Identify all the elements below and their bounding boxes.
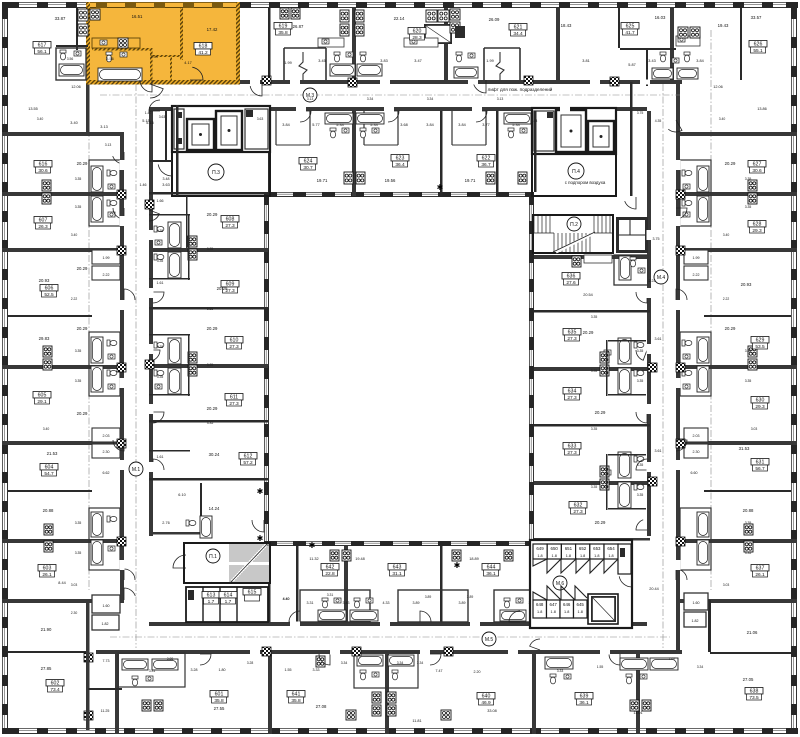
svg-text:16.03: 16.03 [655,15,666,20]
svg-text:11.25: 11.25 [101,709,110,713]
svg-text:3.03: 3.03 [71,583,78,587]
svg-text:20.29: 20.29 [595,410,606,415]
svg-text:1.7: 1.7 [208,599,215,605]
svg-text:31.53: 31.53 [739,446,750,451]
svg-text:2.22: 2.22 [71,297,78,301]
svg-text:30.24: 30.24 [209,452,220,457]
svg-text:3.13: 3.13 [307,97,314,101]
svg-text:41.2: 41.2 [198,50,208,56]
svg-text:3.56: 3.56 [67,57,74,61]
svg-text:1.46: 1.46 [140,183,147,187]
svg-text:35.8: 35.8 [214,698,224,704]
svg-text:3.84: 3.84 [282,123,289,127]
svg-text:641: 641 [292,692,301,698]
svg-text:634: 634 [568,389,577,395]
svg-text:3.88: 3.88 [167,657,174,661]
svg-text:21.90: 21.90 [41,627,52,632]
svg-text:601: 601 [215,692,224,698]
svg-text:33.08: 33.08 [487,709,497,713]
svg-text:с подпором воздуха: с подпором воздуха [565,180,606,185]
svg-text:3.28: 3.28 [247,661,254,665]
svg-text:3.89: 3.89 [425,595,432,599]
svg-text:19.43: 19.43 [718,23,729,28]
svg-text:2.22: 2.22 [649,279,656,283]
svg-text:11.32: 11.32 [309,557,318,561]
svg-text:27.3: 27.3 [225,223,235,229]
svg-text:29.3: 29.3 [752,228,762,234]
svg-text:29.1: 29.1 [37,399,47,405]
svg-text:1.40: 1.40 [145,111,152,115]
svg-text:618: 618 [199,44,208,50]
svg-text:53.5: 53.5 [755,344,765,350]
svg-text:56.7: 56.7 [755,466,765,472]
svg-text:1.82: 1.82 [102,622,109,626]
svg-text:3.48: 3.48 [163,177,170,181]
svg-text:614: 614 [224,593,233,599]
svg-text:1.55: 1.55 [285,668,292,672]
svg-text:4.35: 4.35 [655,119,662,123]
svg-text:627: 627 [753,162,762,168]
svg-text:5.15: 5.15 [142,119,149,123]
svg-text:5.87: 5.87 [628,63,635,67]
svg-text:610: 610 [230,338,239,344]
svg-text:648: 648 [536,602,544,607]
svg-text:633: 633 [568,444,577,450]
svg-text:20.29: 20.29 [77,326,88,331]
svg-text:3.13: 3.13 [105,143,112,147]
svg-text:3.33: 3.33 [313,668,320,672]
svg-text:36.4: 36.4 [395,162,405,168]
svg-text:3.35: 3.35 [745,177,752,181]
svg-text:607: 607 [39,218,48,224]
svg-text:3.35: 3.35 [157,229,164,233]
svg-text:1.8: 1.8 [552,554,557,558]
svg-text:3.31: 3.31 [307,601,314,605]
svg-text:4.17: 4.17 [184,61,191,65]
svg-text:21.53: 21.53 [47,451,58,456]
svg-text:1.7: 1.7 [225,599,232,605]
svg-text:26.09: 26.09 [489,17,500,22]
svg-text:27.85: 27.85 [41,666,52,671]
svg-text:3.40: 3.40 [37,117,44,121]
svg-text:1.99: 1.99 [693,256,700,260]
svg-text:616: 616 [39,162,48,168]
svg-text:3.47: 3.47 [414,59,421,63]
svg-text:34.4: 34.4 [513,31,523,37]
svg-text:19.48: 19.48 [355,557,365,561]
svg-text:625: 625 [626,24,635,30]
svg-text:30.6: 30.6 [752,168,762,174]
svg-text:2.76: 2.76 [162,521,169,525]
svg-text:73.4: 73.4 [50,687,60,693]
svg-text:3.56: 3.56 [106,57,113,61]
svg-text:621: 621 [514,25,523,31]
svg-text:26.1: 26.1 [42,572,52,578]
svg-text:52.5: 52.5 [44,292,54,298]
svg-text:3.35: 3.35 [637,379,644,383]
svg-text:лифт для пож. подразделений: лифт для пож. подразделений [488,86,553,92]
svg-text:31.1: 31.1 [392,571,402,577]
svg-text:3.84: 3.84 [458,123,465,127]
svg-text:20.93: 20.93 [741,282,752,287]
svg-text:12.06: 12.06 [713,85,723,89]
svg-text:20.93: 20.93 [39,278,50,283]
svg-text:22.14: 22.14 [394,16,405,21]
svg-text:606: 606 [45,286,54,292]
svg-text:1.61: 1.61 [157,455,164,459]
svg-text:3.34: 3.34 [427,97,434,101]
svg-text:3.84: 3.84 [696,59,703,63]
svg-text:41.7: 41.7 [625,30,635,36]
svg-text:20.29: 20.29 [217,286,228,291]
svg-text:18.43: 18.43 [561,23,572,28]
svg-text:3.35: 3.35 [157,375,164,379]
svg-text:3.75: 3.75 [653,237,660,241]
svg-text:3.35: 3.35 [745,521,752,525]
svg-text:654: 654 [607,546,615,551]
svg-text:3.35: 3.35 [745,551,752,555]
svg-text:644: 644 [487,565,496,571]
svg-text:11.81: 11.81 [412,719,421,723]
svg-text:4.33: 4.33 [383,601,390,605]
svg-text:36.1: 36.1 [579,700,589,706]
svg-text:3.35: 3.35 [207,247,214,251]
svg-text:3.63: 3.63 [267,543,274,547]
svg-text:1.8: 1.8 [578,610,583,614]
svg-text:3.34: 3.34 [697,665,704,669]
svg-text:21.06: 21.06 [747,630,758,635]
svg-text:637: 637 [756,566,765,572]
svg-text:647: 647 [550,602,558,607]
svg-text:29.83: 29.83 [39,336,50,341]
svg-text:20.88: 20.88 [43,508,54,513]
svg-text:56.1: 56.1 [37,49,47,55]
svg-text:1.8: 1.8 [537,610,542,614]
svg-text:20.29: 20.29 [595,520,606,525]
svg-text:27.3: 27.3 [567,450,577,456]
svg-text:46.9: 46.9 [481,700,491,706]
svg-text:73.5: 73.5 [749,695,759,701]
svg-text:649: 649 [536,546,544,551]
svg-text:20.29: 20.29 [77,411,88,416]
svg-text:624: 624 [304,159,313,165]
svg-text:3.35: 3.35 [637,463,644,467]
svg-text:3.35: 3.35 [745,379,752,383]
svg-text:20.29: 20.29 [77,161,88,166]
svg-text:27.3: 27.3 [567,336,577,342]
svg-text:3.35: 3.35 [157,345,164,349]
svg-text:653: 653 [593,546,601,551]
svg-text:19.56: 19.56 [385,178,396,183]
svg-text:1.66: 1.66 [157,199,164,203]
svg-text:3.83: 3.83 [380,59,387,63]
svg-text:8.44: 8.44 [58,581,65,585]
svg-text:3.63: 3.63 [159,115,166,119]
svg-text:2.20: 2.20 [474,670,481,674]
svg-text:1.8: 1.8 [537,554,542,558]
svg-text:20.29: 20.29 [77,266,88,271]
svg-text:2.22: 2.22 [103,273,110,277]
svg-text:3.35: 3.35 [591,315,598,319]
svg-text:611: 611 [230,395,238,401]
svg-text:3.77: 3.77 [482,123,489,127]
svg-text:3.40: 3.40 [43,427,50,431]
svg-text:605: 605 [38,393,47,399]
svg-text:11.01: 11.01 [633,711,642,715]
svg-text:3.43: 3.43 [343,601,350,605]
svg-text:36.1: 36.1 [486,571,496,577]
svg-text:632: 632 [574,503,583,509]
svg-text:604: 604 [45,465,54,471]
svg-text:635: 635 [568,330,577,336]
svg-text:638: 638 [750,689,759,695]
svg-text:16.51: 16.51 [132,14,143,19]
svg-text:7.47: 7.47 [436,669,443,673]
svg-text:612: 612 [244,454,253,460]
svg-text:3.40: 3.40 [719,117,726,121]
svg-text:М.1: М.1 [132,467,141,473]
svg-text:26.87: 26.87 [293,24,304,29]
svg-text:3.34: 3.34 [150,55,157,59]
svg-text:2.30: 2.30 [71,611,78,615]
svg-text:3.03: 3.03 [723,583,730,587]
svg-text:19.71: 19.71 [465,178,476,183]
svg-text:20.29: 20.29 [725,161,736,166]
svg-text:20.44: 20.44 [649,587,659,591]
svg-text:7.73: 7.73 [103,659,110,663]
svg-text:27.55: 27.55 [214,706,225,711]
svg-text:631: 631 [756,460,765,466]
svg-text:35.8: 35.8 [278,30,288,36]
svg-text:615: 615 [248,590,257,596]
svg-text:36.7: 36.7 [481,162,491,168]
svg-text:3.13: 3.13 [497,97,504,101]
svg-text:54.7: 54.7 [44,471,54,477]
svg-text:✱: ✱ [309,541,316,550]
svg-text:2.22: 2.22 [693,273,700,277]
svg-text:3.35: 3.35 [637,493,644,497]
svg-text:М.4: М.4 [657,275,666,281]
svg-text:57.2: 57.2 [243,460,253,466]
svg-text:1.8: 1.8 [594,554,599,558]
svg-text:13.55: 13.55 [28,107,38,111]
svg-text:3.43: 3.43 [648,59,655,63]
svg-text:27.3: 27.3 [573,509,583,515]
svg-text:3.35: 3.35 [591,427,598,431]
svg-text:27.08: 27.08 [316,704,327,709]
svg-text:3.81: 3.81 [582,59,589,63]
svg-text:17.42: 17.42 [207,27,218,32]
svg-text:3.89: 3.89 [459,601,466,605]
svg-text:1.8: 1.8 [580,554,585,558]
svg-text:1.60: 1.60 [103,604,110,608]
svg-text:30.6: 30.6 [38,168,48,174]
svg-text:628: 628 [753,222,762,228]
svg-text:2.03: 2.03 [103,434,110,438]
svg-text:3.35: 3.35 [75,349,82,353]
svg-text:1.60: 1.60 [693,601,700,605]
svg-text:642: 642 [326,565,335,571]
svg-text:3.35: 3.35 [745,205,752,209]
svg-text:20.29: 20.29 [207,326,218,331]
svg-text:3.35: 3.35 [207,421,214,425]
svg-text:3.89: 3.89 [467,595,474,599]
svg-text:3.31: 3.31 [327,593,334,597]
svg-text:13.86: 13.86 [757,107,767,111]
svg-text:6.60: 6.60 [691,471,698,475]
svg-text:3.35: 3.35 [157,259,164,263]
svg-text:М.6: М.6 [556,581,565,587]
svg-text:3.84: 3.84 [426,123,433,127]
svg-text:3.31: 3.31 [149,669,156,673]
svg-text:2.22: 2.22 [723,297,730,301]
svg-text:652: 652 [579,546,587,551]
svg-text:5.77: 5.77 [312,123,319,127]
svg-text:22.8: 22.8 [325,571,335,577]
svg-text:35.8: 35.8 [291,698,301,704]
svg-text:26.3: 26.3 [38,224,48,230]
svg-text:1.8: 1.8 [551,610,556,614]
svg-text:✱: ✱ [257,487,264,496]
svg-text:20.88: 20.88 [743,508,754,513]
svg-text:5.34: 5.34 [370,123,377,127]
svg-text:3.40: 3.40 [71,233,78,237]
svg-text:3.34: 3.34 [367,97,374,101]
svg-text:626: 626 [754,42,763,48]
svg-text:3.35: 3.35 [75,379,82,383]
svg-text:3.35: 3.35 [75,521,82,525]
svg-text:2.03: 2.03 [693,434,700,438]
svg-text:617: 617 [38,43,47,49]
svg-text:622: 622 [482,156,491,162]
svg-text:3.40: 3.40 [70,121,77,125]
svg-text:27.3: 27.3 [229,344,239,350]
svg-text:27.3: 27.3 [567,395,577,401]
svg-text:✱: ✱ [454,561,461,570]
svg-text:3.34: 3.34 [417,661,424,665]
svg-text:М.5: М.5 [485,637,494,643]
svg-text:27.6: 27.6 [566,280,576,286]
svg-text:3.63: 3.63 [162,183,169,187]
svg-text:3.13: 3.13 [100,125,107,129]
svg-text:3.75: 3.75 [637,111,644,115]
svg-text:14.24: 14.24 [209,506,220,511]
svg-text:3.35: 3.35 [591,369,598,373]
svg-text:646: 646 [563,602,571,607]
svg-text:1.8: 1.8 [608,554,613,558]
svg-text:20.29: 20.29 [725,326,736,331]
svg-text:✱: ✱ [257,534,264,543]
svg-text:3.35: 3.35 [207,363,214,367]
svg-text:3.40: 3.40 [723,233,730,237]
svg-text:20.29: 20.29 [207,212,218,217]
svg-text:1.80: 1.80 [219,668,226,672]
svg-text:2.30: 2.30 [693,450,700,454]
svg-text:6.62: 6.62 [103,471,110,475]
svg-text:3.35: 3.35 [75,551,82,555]
svg-text:12.06: 12.06 [71,85,81,89]
svg-text:20.29: 20.29 [207,406,218,411]
svg-text:3.35: 3.35 [591,485,598,489]
svg-text:3.61: 3.61 [655,449,662,453]
svg-text:1.99: 1.99 [486,59,493,63]
svg-text:3.63: 3.63 [257,117,264,121]
svg-text:3.34: 3.34 [341,661,348,665]
svg-text:3.35: 3.35 [207,307,214,311]
svg-text:3.03: 3.03 [751,427,758,431]
svg-text:1.61: 1.61 [157,281,164,285]
svg-text:6.10: 6.10 [178,493,185,497]
svg-text:3.34: 3.34 [397,661,404,665]
svg-text:27.3: 27.3 [229,401,239,407]
svg-text:27.05: 27.05 [743,677,754,682]
svg-text:645: 645 [577,602,585,607]
svg-text:26.1: 26.1 [755,572,765,578]
svg-text:640: 640 [482,694,491,700]
svg-text:629: 629 [756,338,765,344]
svg-text:33.87: 33.87 [55,16,66,21]
svg-text:643: 643 [393,565,402,571]
svg-text:623: 623 [396,156,405,162]
svg-text:650: 650 [551,546,559,551]
svg-text:1.55: 1.55 [597,665,604,669]
svg-text:3.33: 3.33 [557,669,564,673]
svg-text:5.34: 5.34 [336,123,343,127]
svg-text:602: 602 [51,681,60,687]
svg-text:30.7: 30.7 [303,165,313,171]
svg-text:П.4: П.4 [572,169,580,175]
svg-text:1.99: 1.99 [103,256,110,260]
svg-text:639: 639 [580,694,589,700]
svg-text:3.35: 3.35 [75,177,82,181]
svg-text:33.57: 33.57 [751,15,762,20]
svg-text:3.45: 3.45 [318,59,325,63]
svg-text:П.2: П.2 [570,222,578,228]
svg-text:3.63: 3.63 [497,543,504,547]
svg-text:20.54: 20.54 [583,293,593,297]
svg-text:1.8: 1.8 [564,610,569,614]
svg-text:3.89: 3.89 [413,601,420,605]
svg-text:28.3: 28.3 [412,35,422,41]
svg-text:20.29: 20.29 [583,330,594,335]
svg-text:636: 636 [567,274,576,280]
svg-text:3.63: 3.63 [531,119,538,123]
svg-text:29.3: 29.3 [755,404,765,410]
svg-text:3.28: 3.28 [191,668,198,672]
svg-text:1.82: 1.82 [692,619,699,623]
svg-text:2.30: 2.30 [103,450,110,454]
svg-text:603: 603 [43,566,52,572]
svg-text:608: 608 [226,217,235,223]
svg-text:4.40: 4.40 [283,597,290,601]
svg-text:П.1: П.1 [209,554,217,560]
svg-text:5.34: 5.34 [512,123,519,127]
svg-text:18.89: 18.89 [469,557,479,561]
svg-text:651: 651 [565,546,573,551]
svg-text:620: 620 [413,29,422,35]
svg-text:55.1: 55.1 [753,48,763,54]
svg-text:613: 613 [207,593,216,599]
svg-text:1.99: 1.99 [284,61,291,65]
svg-text:3.61: 3.61 [655,337,662,341]
svg-text:3.35: 3.35 [75,205,82,209]
svg-text:7.67: 7.67 [669,657,676,661]
svg-text:3.35: 3.35 [637,349,644,353]
svg-text:619: 619 [279,24,288,30]
svg-text:3.35: 3.35 [745,349,752,353]
svg-text:630: 630 [756,398,765,404]
svg-text:1.8: 1.8 [566,554,571,558]
